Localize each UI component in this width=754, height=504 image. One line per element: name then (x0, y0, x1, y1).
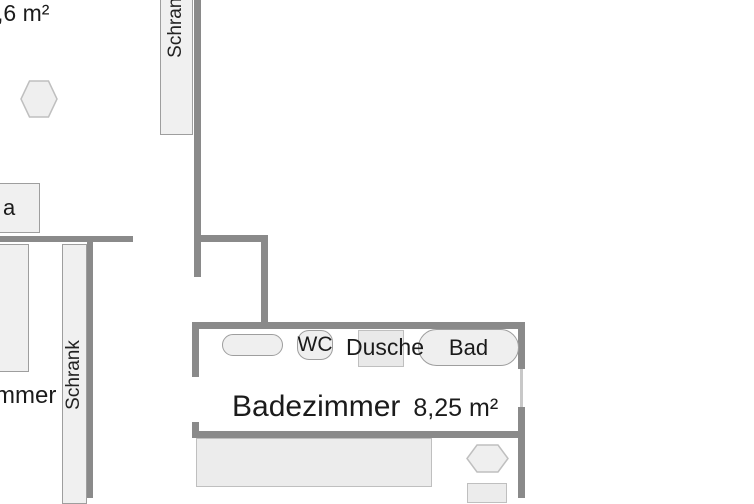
bathtub-label: Bad (449, 335, 488, 361)
floor-plan: Schrank ,6 m² a mmer Schrank WC Dusche B… (0, 0, 754, 498)
wardrobe-left-label: Schrank (64, 335, 84, 415)
wall-bathroom-top (192, 322, 525, 329)
bed-rect (196, 438, 432, 487)
sink (222, 334, 283, 356)
toilet-label: WC (298, 333, 333, 357)
wall-bathroom-right-lower (518, 407, 525, 498)
room-name-partial: mmer (0, 382, 56, 410)
wall-niche-top (194, 235, 268, 242)
bathroom-title: Badezimmer 8,25 m² (232, 390, 498, 424)
wall-niche-right (261, 235, 268, 328)
shower-label: Dusche (346, 334, 424, 361)
door-opening-right (520, 369, 523, 407)
small-fixture-rect (467, 483, 507, 503)
wall-bathroom-right-upper (518, 322, 525, 369)
area-label-top-left: ,6 m² (0, 0, 49, 27)
toilet: WC (297, 330, 333, 360)
hexagon-marker-icon (466, 444, 509, 473)
bathroom-name: Badezimmer (232, 390, 400, 424)
wall-bathroom-left-upper (192, 322, 199, 377)
left-cabinet (0, 244, 29, 372)
closet-top-label: Schrank (166, 0, 186, 63)
sofa-label-partial: a (3, 195, 15, 221)
wall-bathroom-bottom (192, 431, 525, 438)
bathtub: Bad (418, 329, 519, 366)
bathroom-area: 8,25 m² (413, 394, 498, 423)
hexagon-marker-icon (20, 80, 58, 118)
wall-left-room-vertical (87, 242, 93, 498)
wall-left-room-horizontal (0, 236, 133, 242)
